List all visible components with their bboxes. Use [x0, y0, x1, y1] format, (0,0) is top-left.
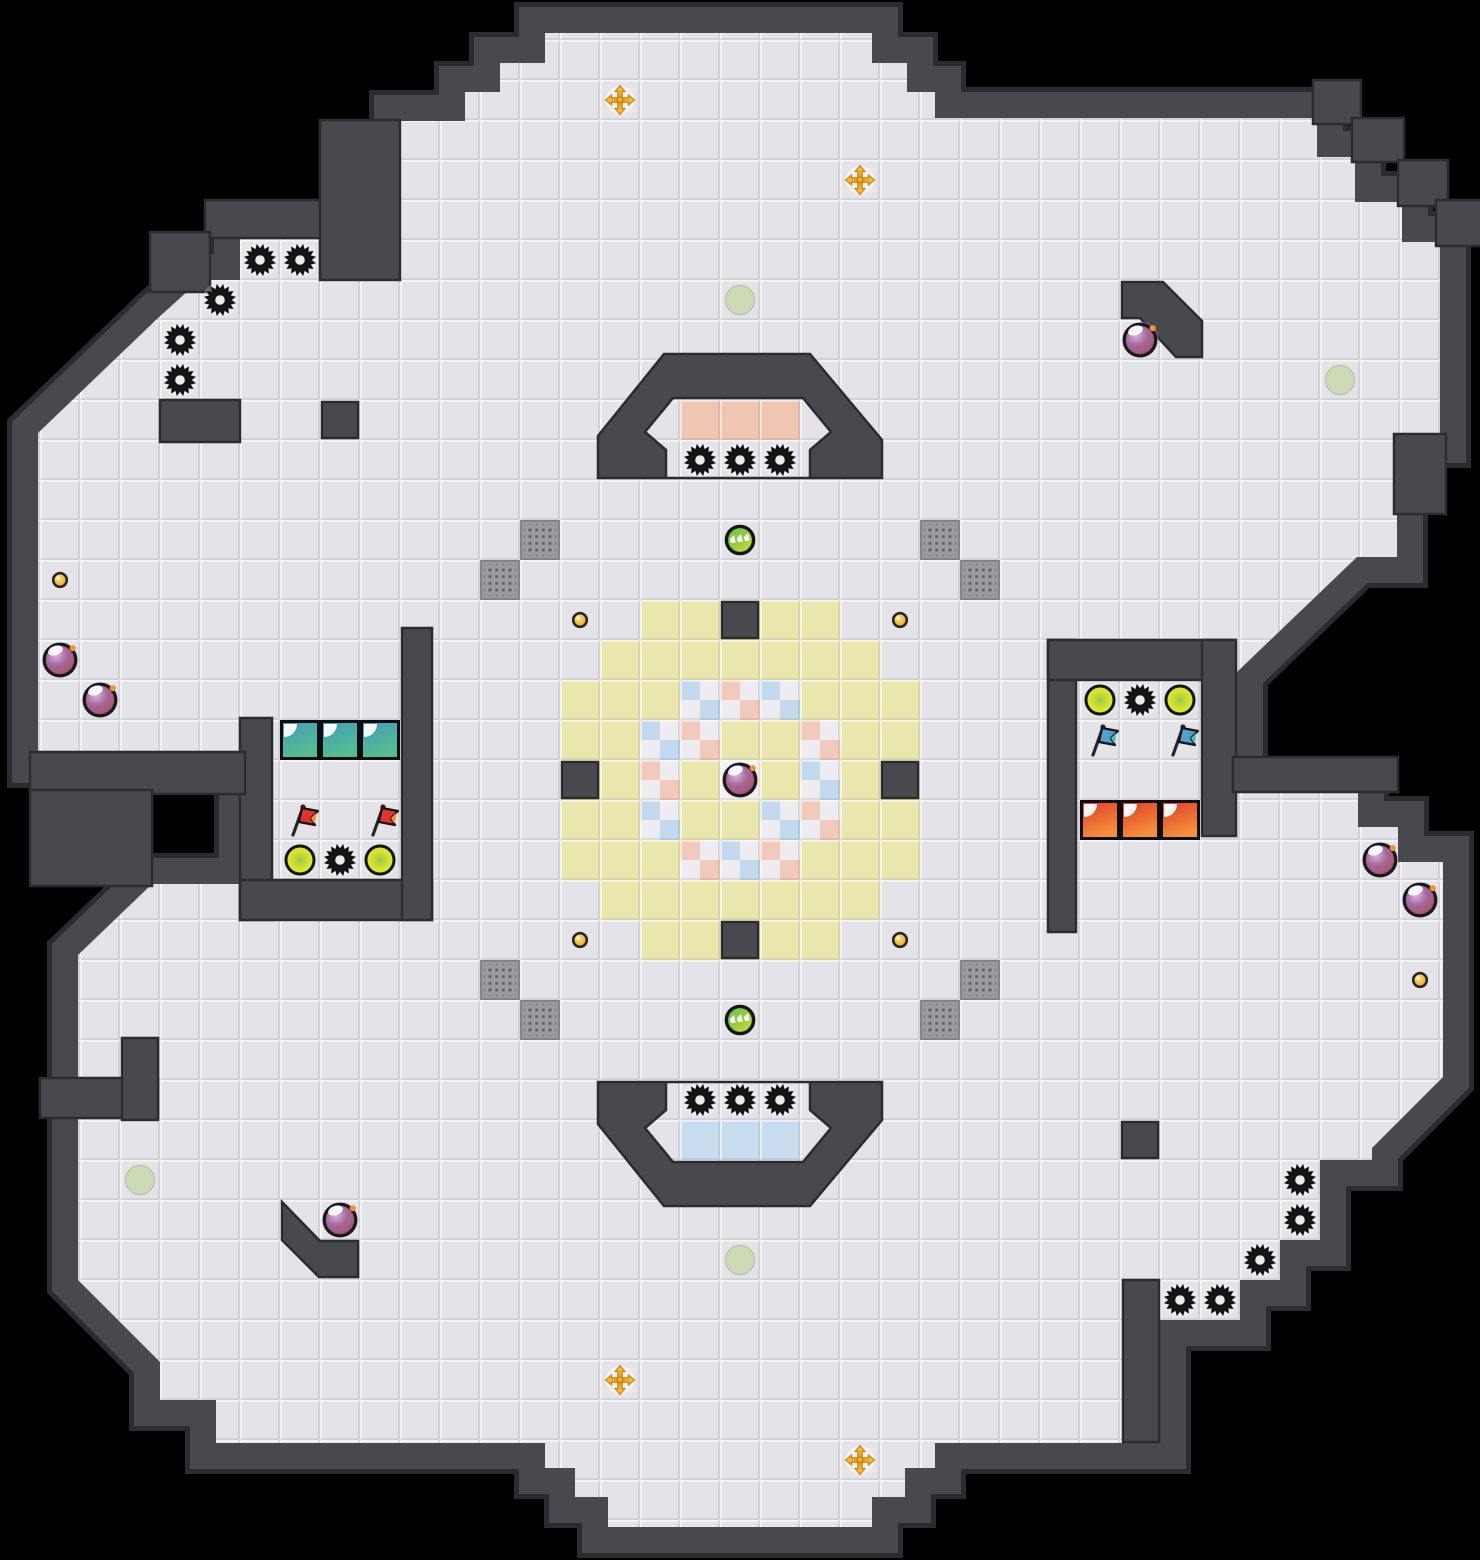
gate-tile [920, 1000, 960, 1040]
button [893, 613, 907, 627]
spike [243, 243, 278, 278]
gate-tile [480, 560, 520, 600]
game-viewport[interactable] [0, 0, 1480, 1560]
spike [1283, 1203, 1318, 1238]
portal-cross [846, 166, 875, 195]
spawn-dot [726, 286, 755, 315]
team-tile-red [1122, 802, 1159, 839]
spike [163, 323, 198, 358]
button [893, 933, 907, 947]
spawn-dot [726, 1246, 755, 1275]
boost-orb [1086, 686, 1114, 714]
spike [1283, 1163, 1318, 1198]
boost-orb [366, 846, 394, 874]
game-map-canvas[interactable] [0, 0, 1480, 1560]
team-tile-red [1162, 802, 1199, 839]
spike [763, 443, 798, 478]
team-tile-blue [362, 722, 399, 759]
spike [763, 1083, 798, 1118]
button [1413, 973, 1427, 987]
bomb [322, 1202, 359, 1239]
spike [203, 283, 238, 318]
gate-tile [960, 560, 1000, 600]
bomb [42, 642, 79, 679]
portal-cross [606, 86, 635, 115]
gate-tile [960, 960, 1000, 1000]
gate-tile [480, 960, 520, 1000]
gate-tile [520, 520, 560, 560]
spawn-dot [1326, 366, 1355, 395]
bomb [1362, 842, 1399, 879]
spike [1243, 1243, 1278, 1278]
boost-orb [286, 846, 314, 874]
spike [163, 363, 198, 398]
spike [723, 443, 758, 478]
bomb [1122, 322, 1159, 359]
team-tile-red [1082, 802, 1119, 839]
spike [683, 1083, 718, 1118]
bomb [722, 762, 759, 799]
portal-cross [846, 1446, 875, 1475]
button [53, 573, 67, 587]
boost-orb [1166, 686, 1194, 714]
spike [1123, 683, 1158, 718]
spike [283, 243, 318, 278]
spike [683, 443, 718, 478]
team-tile-blue [282, 722, 319, 759]
spike [1163, 1283, 1198, 1318]
spawn-dot [126, 1166, 155, 1195]
bomb [1402, 882, 1439, 919]
juke-juice [726, 1006, 753, 1033]
button [573, 613, 587, 627]
portal-cross [606, 1366, 635, 1395]
spike [1203, 1283, 1238, 1318]
gate-tile [520, 1000, 560, 1040]
spike [323, 843, 358, 878]
team-tile-blue [322, 722, 359, 759]
gate-tile [920, 520, 960, 560]
button [573, 933, 587, 947]
juke-juice [726, 526, 753, 553]
spike [723, 1083, 758, 1118]
bomb [82, 682, 119, 719]
